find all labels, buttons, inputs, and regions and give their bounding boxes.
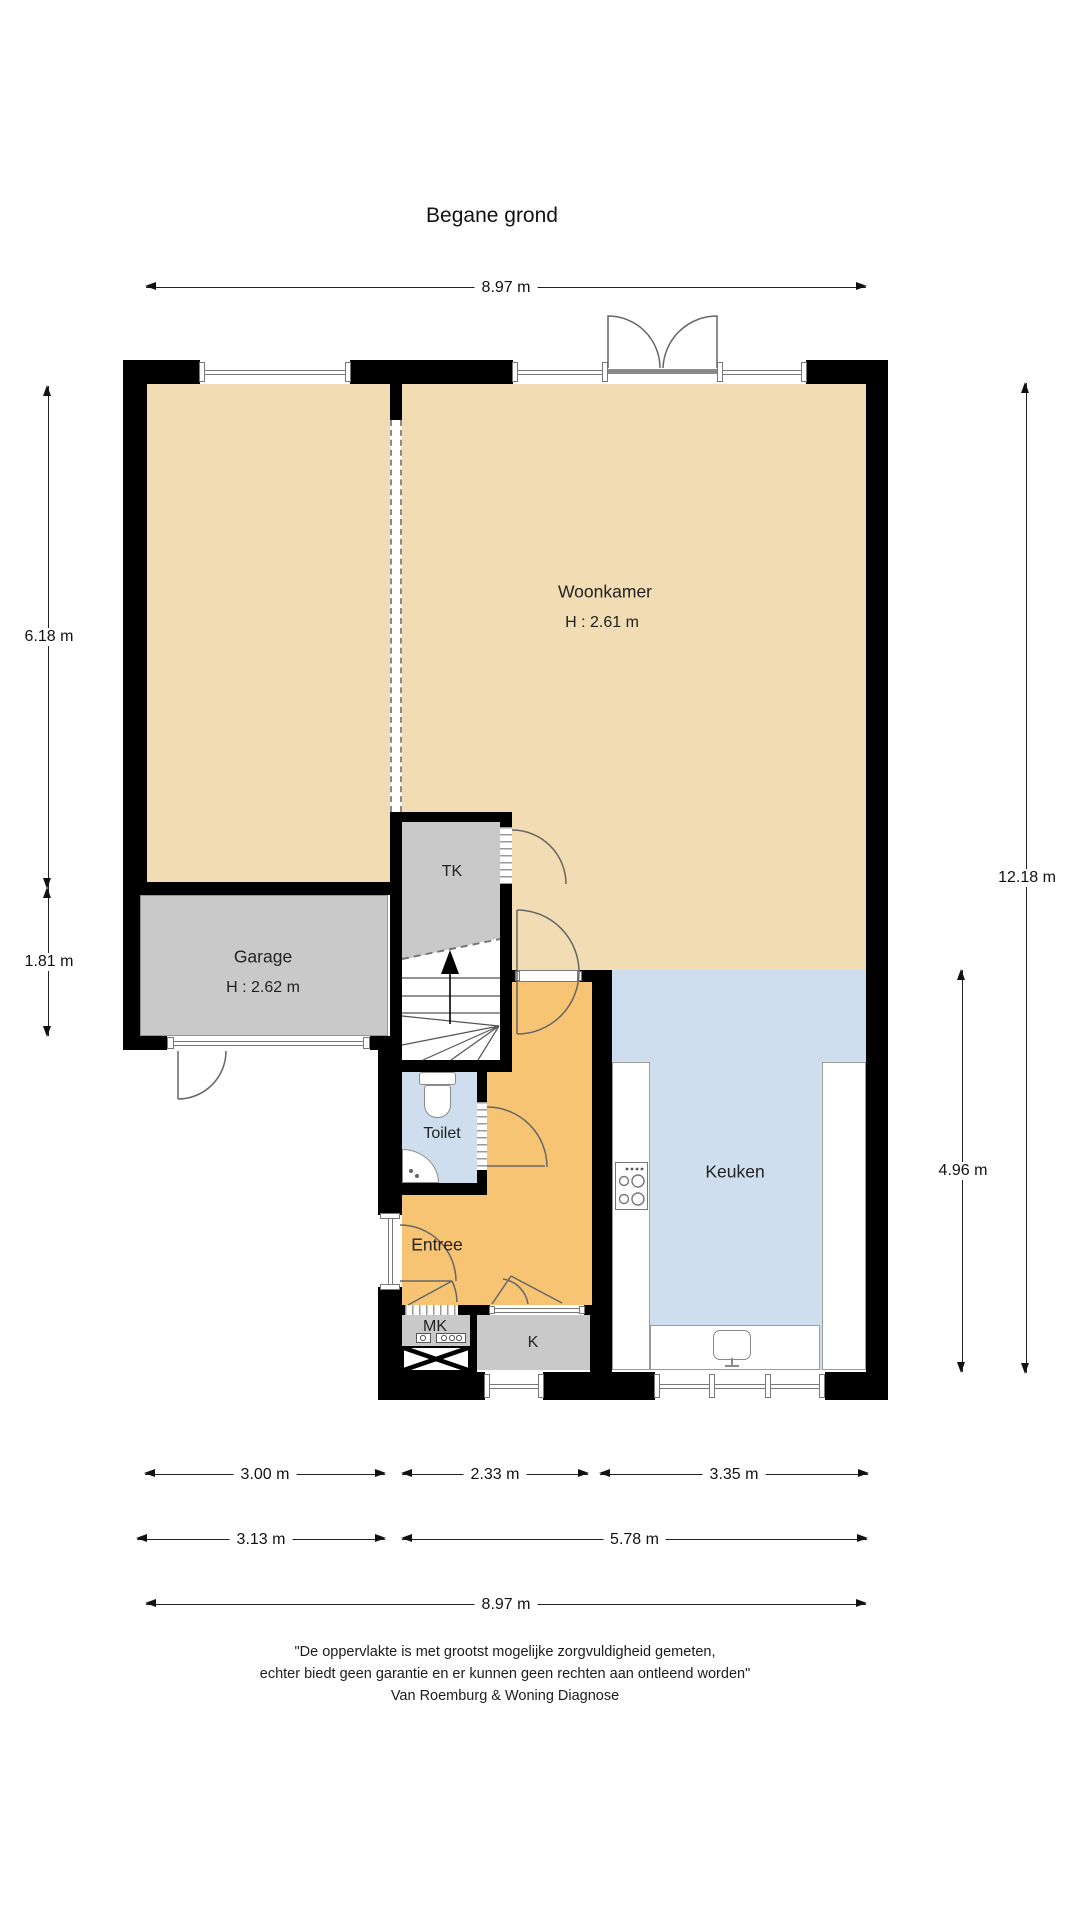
label-woonkamer: Woonkamer [558,582,652,603]
label-k: K [528,1334,539,1352]
window-jamb [345,362,351,382]
garage-door-opening [167,1036,370,1050]
kitchen-counter-right [822,1062,866,1370]
wall-bottom-b [543,1372,655,1400]
wall-entree-bottom-c [584,1305,612,1315]
toilet-door [477,1102,487,1170]
wall-right [866,360,888,1400]
toilet-bowl [424,1085,451,1118]
window-top-3 [718,360,806,384]
k-door-opening [490,1305,584,1315]
dim-right-total-label: 12.18 m [991,869,1063,887]
window-jamb [602,362,608,382]
wall-divider-stub [390,384,402,420]
label-mk: MK [423,1318,447,1336]
cased-opening-woonkamer-entree [517,970,580,982]
crawlspace-hatch [402,1346,470,1372]
dim-bottom-2b: 5.78 m [402,1539,867,1540]
front-door-opening [378,1215,402,1287]
wall-left-upper [123,360,147,883]
wall-entree-keuken [592,970,612,1315]
disclaimer-line1: "De oppervlakte is met grootst mogelijke… [145,1641,865,1663]
room-entree-floor-upper [512,982,592,1072]
dim-bottom-2a: 3.13 m [137,1539,385,1540]
wall-tk-top [390,812,512,822]
stove [615,1162,648,1210]
window-jamb [484,1374,490,1398]
dim-left-lower: 1.81 m [48,888,49,1036]
door-jamb [167,1037,174,1049]
disclaimer: "De oppervlakte is met grootst mogelijke… [145,1641,865,1707]
kitchen-counter-left [612,1062,650,1370]
door-jamb [577,971,582,981]
page-title: Begane grond [426,204,558,228]
door-jamb [380,1284,400,1290]
wall-toilet-bottom [402,1183,487,1195]
wall-below-stairs [390,1060,512,1072]
wall-top-mid [350,360,513,384]
door-jamb [380,1213,400,1219]
window-jamb [717,362,723,382]
window-jamb [538,1374,544,1398]
dim-left-upper-label: 6.18 m [18,628,81,646]
label-garage: Garage [234,947,292,968]
french-door-opening [607,360,718,384]
room-entree-floor-mid [487,1072,592,1195]
wall-stairs-left [390,822,402,1072]
label-entree: Entree [411,1235,463,1256]
window-mullion [765,1374,771,1398]
door-jamb [579,1306,585,1314]
dim-top-width-label: 8.97 m [475,279,538,297]
window-bottom-kitchen [655,1372,825,1400]
dim-left-upper: 6.18 m [48,386,49,888]
room-woonkamer-left-floor [147,384,390,882]
dim-right-total: 12.18 m [1026,383,1027,1373]
dim-bottom-total: 8.97 m [146,1604,866,1605]
dim-bottom-2b-label: 5.78 m [603,1531,666,1549]
dim-bottom-1c-label: 3.35 m [703,1466,766,1484]
window-jamb [512,362,518,382]
window-top-2 [513,360,607,384]
dim-bottom-2a-label: 3.13 m [230,1531,293,1549]
garage-door-swing [178,1051,226,1099]
wall-garage-bottom-left [123,1036,167,1050]
wall-garage-left [123,883,140,1050]
room-tk-floor [402,822,500,960]
window-bottom-1 [485,1372,543,1400]
dim-bottom-total-label: 8.97 m [475,1596,538,1614]
window-jamb [199,362,205,382]
dim-bottom-1b-label: 2.33 m [464,1466,527,1484]
window-jamb [801,362,807,382]
dim-right-kitchen: 4.96 m [962,970,963,1372]
label-keuken: Keuken [705,1162,764,1183]
kitchen-sink [713,1330,751,1360]
wall-entree-bottom-b [458,1305,490,1315]
label-woonkamer-height: H : 2.61 m [565,614,639,632]
dim-bottom-1a-label: 3.00 m [234,1466,297,1484]
dim-bottom-1c: 3.35 m [600,1474,868,1475]
door-jamb [363,1037,370,1049]
dim-right-kitchen-label: 4.96 m [932,1162,995,1180]
wall-k-right [590,1315,612,1372]
tk-door [500,827,512,884]
dim-bottom-1a: 3.00 m [145,1474,385,1475]
wall-bottom-a [378,1372,485,1400]
door-jamb [515,971,520,981]
wall-bottom-c [825,1372,888,1400]
window-top-1 [200,360,350,384]
window-jamb [654,1374,660,1398]
dim-bottom-1b: 2.33 m [402,1474,588,1475]
wall-lower-left-a [378,1036,402,1215]
toilet-cistern [419,1072,456,1085]
window-jamb [819,1374,825,1398]
label-tk: TK [442,863,462,881]
mk-door [405,1305,458,1315]
window-mullion [709,1374,715,1398]
dim-top-width: 8.97 m [146,287,866,288]
wall-divider-dashed-open [390,420,402,812]
wall-mk-k-divider [470,1315,477,1372]
wall-garage-top [123,882,402,895]
disclaimer-line2: echter biedt geen garantie en er kunnen … [145,1663,865,1685]
label-toilet: Toilet [423,1125,460,1143]
wall-toilet-right-a [477,1072,487,1102]
dim-left-lower-label: 1.81 m [18,953,81,971]
door-jamb [489,1306,495,1314]
label-garage-height: H : 2.62 m [226,979,300,997]
disclaimer-line3: Van Roemburg & Woning Diagnose [145,1685,865,1707]
